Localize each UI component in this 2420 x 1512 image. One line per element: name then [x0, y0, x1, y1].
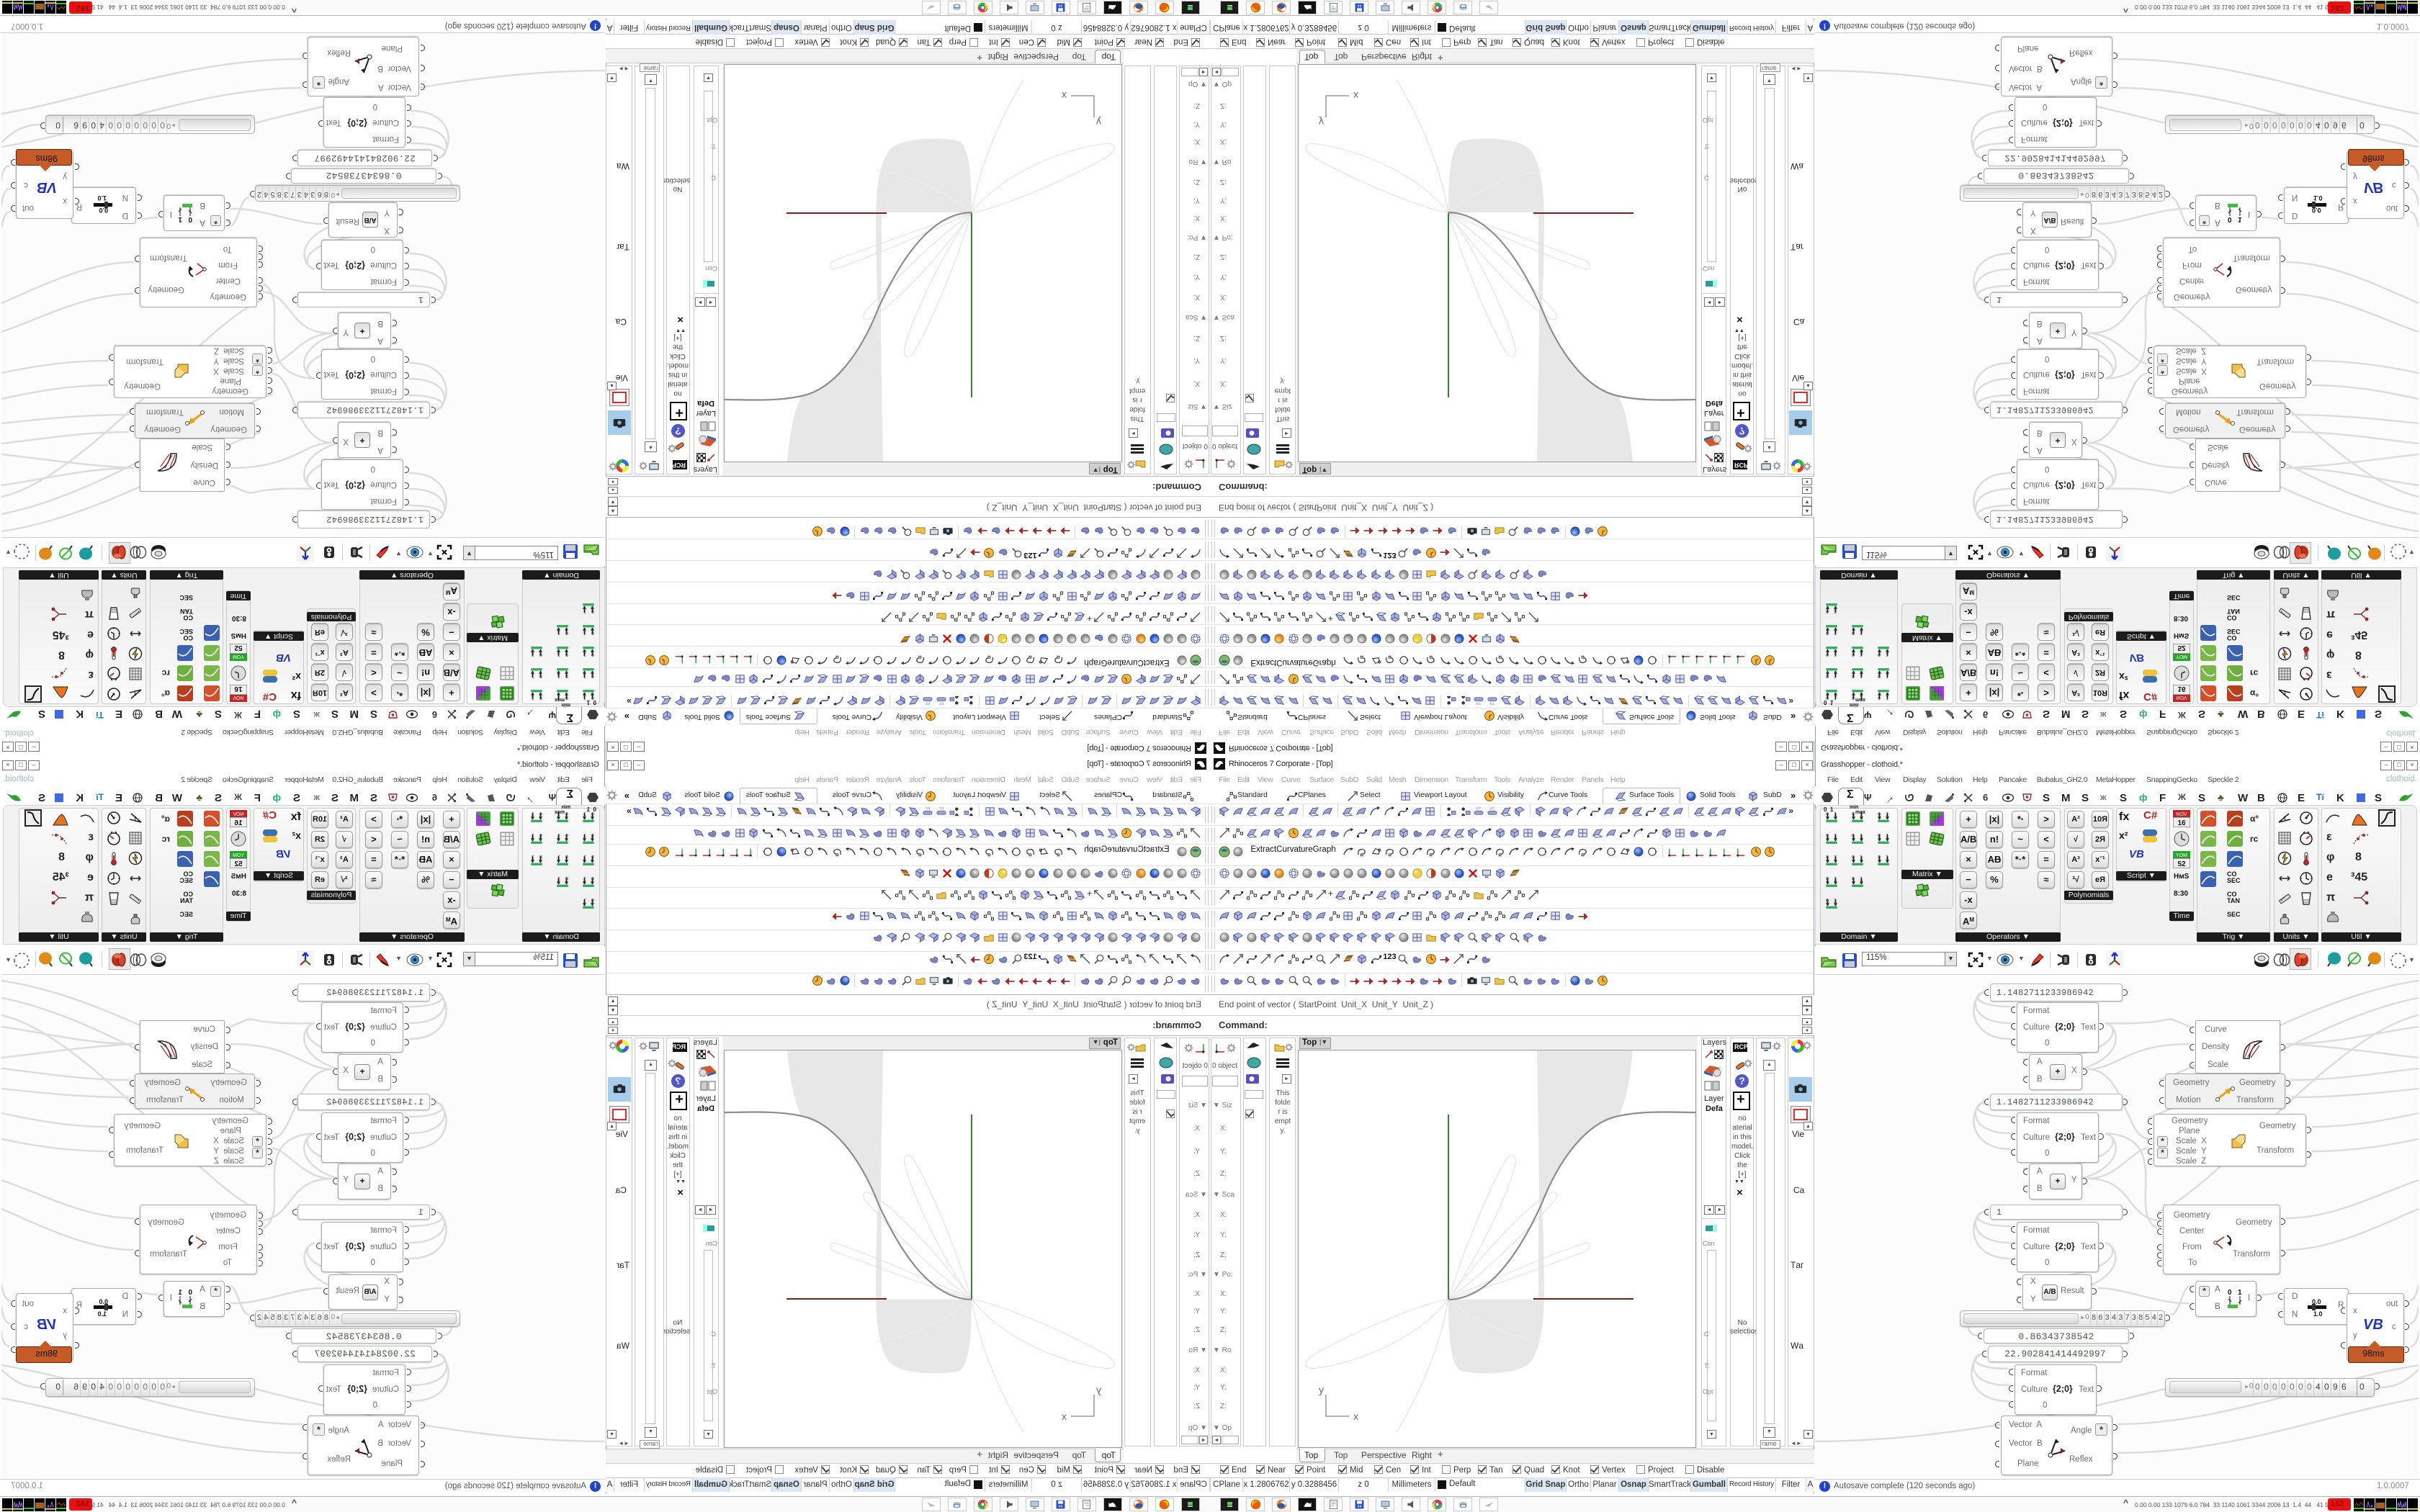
svg-text:1.0: 1.0 [2313, 194, 2323, 202]
svg-text:1: 1 [178, 1289, 182, 1297]
svg-text:64: 64 [1357, 1505, 1361, 1509]
svg-text:52: 52 [2177, 644, 2186, 652]
svg-text:YOM: YOM [2176, 853, 2187, 858]
svg-text:64: 64 [1059, 3, 1063, 7]
svg-text:YOM: YOM [233, 654, 244, 659]
svg-text:NOV: NOV [2176, 695, 2187, 700]
svg-text:x: x [1353, 90, 1358, 102]
svg-text:y: y [1096, 117, 1101, 128]
svg-text:16: 16 [2177, 685, 2186, 693]
svg-text:NOV: NOV [233, 695, 244, 700]
svg-text:1: 1 [178, 215, 182, 223]
svg-text:YOM: YOM [2176, 654, 2187, 659]
svg-text:YOM: YOM [233, 853, 244, 858]
svg-text:NOV: NOV [233, 812, 244, 817]
svg-text:NOV: NOV [2176, 812, 2187, 817]
svg-text:0: 0 [188, 1289, 192, 1297]
svg-text:1.0: 1.0 [2313, 1310, 2323, 1318]
svg-text:1: 1 [2238, 215, 2242, 223]
svg-text:x: x [1353, 1410, 1358, 1422]
svg-text:64: 64 [1357, 3, 1361, 7]
svg-text:52: 52 [234, 644, 243, 652]
svg-text:52: 52 [2177, 860, 2186, 868]
svg-text:0: 0 [2228, 1289, 2232, 1297]
svg-text:1.0: 1.0 [97, 194, 107, 202]
svg-text:16: 16 [234, 685, 243, 693]
svg-text:1.0: 1.0 [97, 1310, 107, 1318]
svg-text:y: y [1096, 1384, 1101, 1395]
svg-text:64: 64 [1059, 1505, 1063, 1509]
svg-text:16: 16 [234, 819, 243, 827]
svg-text:x: x [1062, 1410, 1067, 1422]
svg-text:y: y [1319, 117, 1324, 128]
svg-text:52: 52 [234, 860, 243, 868]
svg-text:16: 16 [2177, 819, 2186, 827]
svg-text:x: x [1062, 90, 1067, 102]
svg-text:1: 1 [2238, 1289, 2242, 1297]
svg-text:0: 0 [2228, 215, 2232, 223]
svg-text:0: 0 [188, 215, 192, 223]
svg-text:y: y [1319, 1384, 1324, 1395]
